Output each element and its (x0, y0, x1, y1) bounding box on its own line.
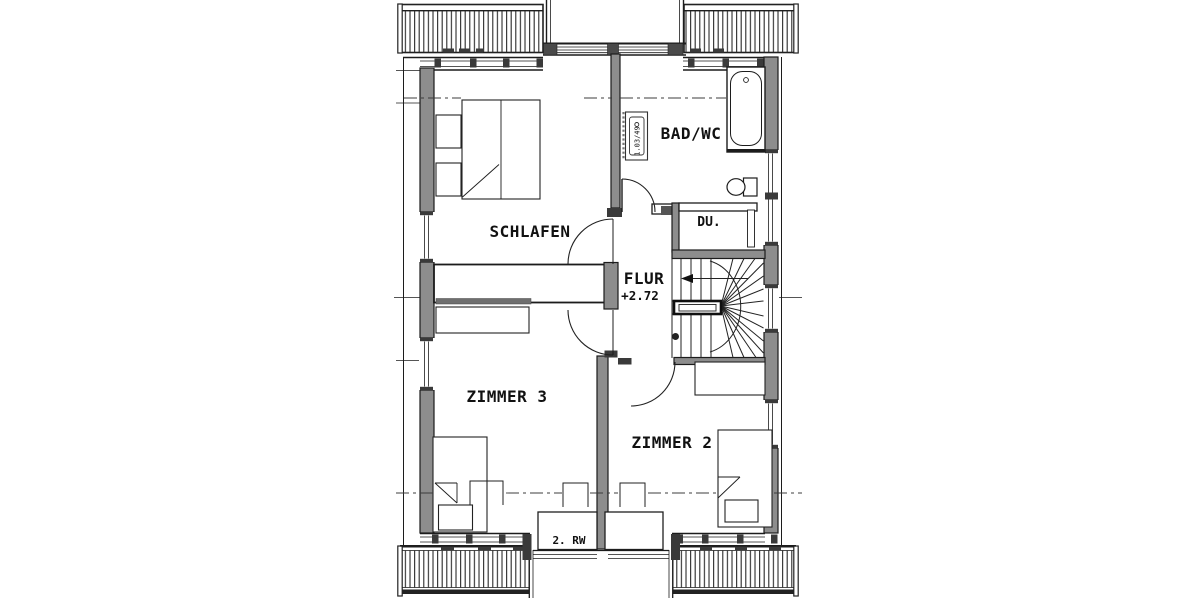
floor-plan-page: 1.03/49 SCHLAFEN BAD/WC DU. FLUR (0, 0, 1200, 600)
label-dusche: DU. (697, 215, 720, 230)
window-stair-right (763, 285, 779, 332)
window-schlafen-left (419, 212, 435, 262)
tub-drain-icon (744, 78, 749, 83)
label-schlafen: SCHLAFEN (489, 222, 570, 241)
window-bath-right (763, 150, 779, 245)
stair-newel-post (672, 333, 679, 340)
washbasin-unit: 1.03/49 (624, 112, 648, 160)
door-zimmer2 (631, 362, 675, 406)
nightstand (436, 115, 461, 148)
roof-band-top-left (398, 4, 543, 53)
roof-band-top-right (684, 4, 798, 53)
label-zimmer2: ZIMMER 2 (631, 433, 712, 452)
door-bad (622, 179, 655, 212)
door-zimmer3 (568, 310, 613, 355)
dresser-zimmer3 (436, 307, 529, 333)
roof-band-bottom-right (673, 546, 798, 596)
fixture-tag: 1.03/49 (633, 126, 641, 156)
nightstand (436, 163, 461, 196)
label-zimmer3: ZIMMER 3 (466, 387, 547, 406)
label-flur-level: +2.72 (621, 288, 659, 303)
door-schlafen (568, 219, 613, 264)
roof-window-symbol (563, 483, 588, 507)
knee-wall-top (403, 58, 778, 71)
top-dormer (543, 0, 686, 55)
staircase (672, 258, 764, 358)
bathtub (727, 67, 765, 152)
label-escape-route: 2. RW (552, 534, 585, 547)
toilet (727, 178, 757, 196)
wardrobe-zimmer2 (695, 362, 765, 395)
label-bad-wc: BAD/WC (661, 124, 722, 143)
floor-plan-drawing: 1.03/49 SCHLAFEN BAD/WC DU. FLUR (0, 0, 1200, 600)
label-flur: FLUR (624, 269, 665, 288)
roof-band-bottom-left (398, 546, 529, 596)
window-zimmer3-left (419, 338, 435, 390)
roof-window-symbol (620, 483, 645, 507)
